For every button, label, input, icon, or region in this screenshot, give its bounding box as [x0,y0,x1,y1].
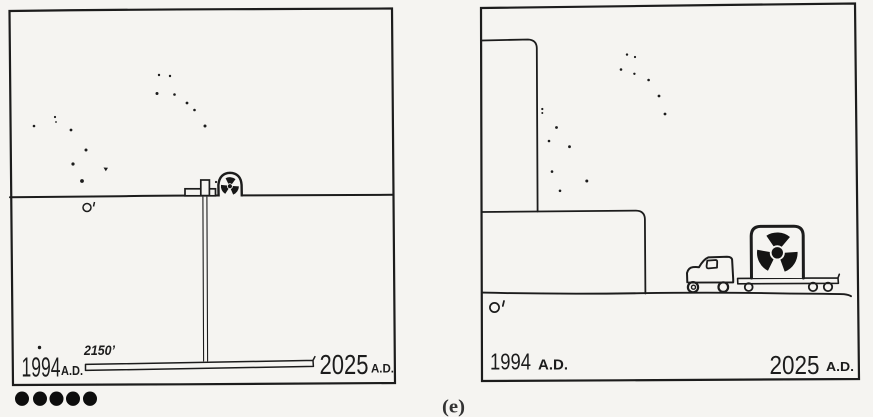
svg-text:2025: 2025 [770,350,820,380]
svg-text:1994: 1994 [490,348,531,374]
svg-text:A.D.: A.D. [538,358,568,374]
svg-text:A.D.: A.D. [371,362,394,376]
svg-text:2025: 2025 [320,349,369,380]
svg-text:(e): (e) [442,397,465,417]
svg-text:2150’: 2150’ [83,342,116,358]
svg-text:A.D.: A.D. [826,359,854,374]
svg-text:A.D.: A.D. [61,364,83,378]
svg-text:1994: 1994 [22,352,61,383]
